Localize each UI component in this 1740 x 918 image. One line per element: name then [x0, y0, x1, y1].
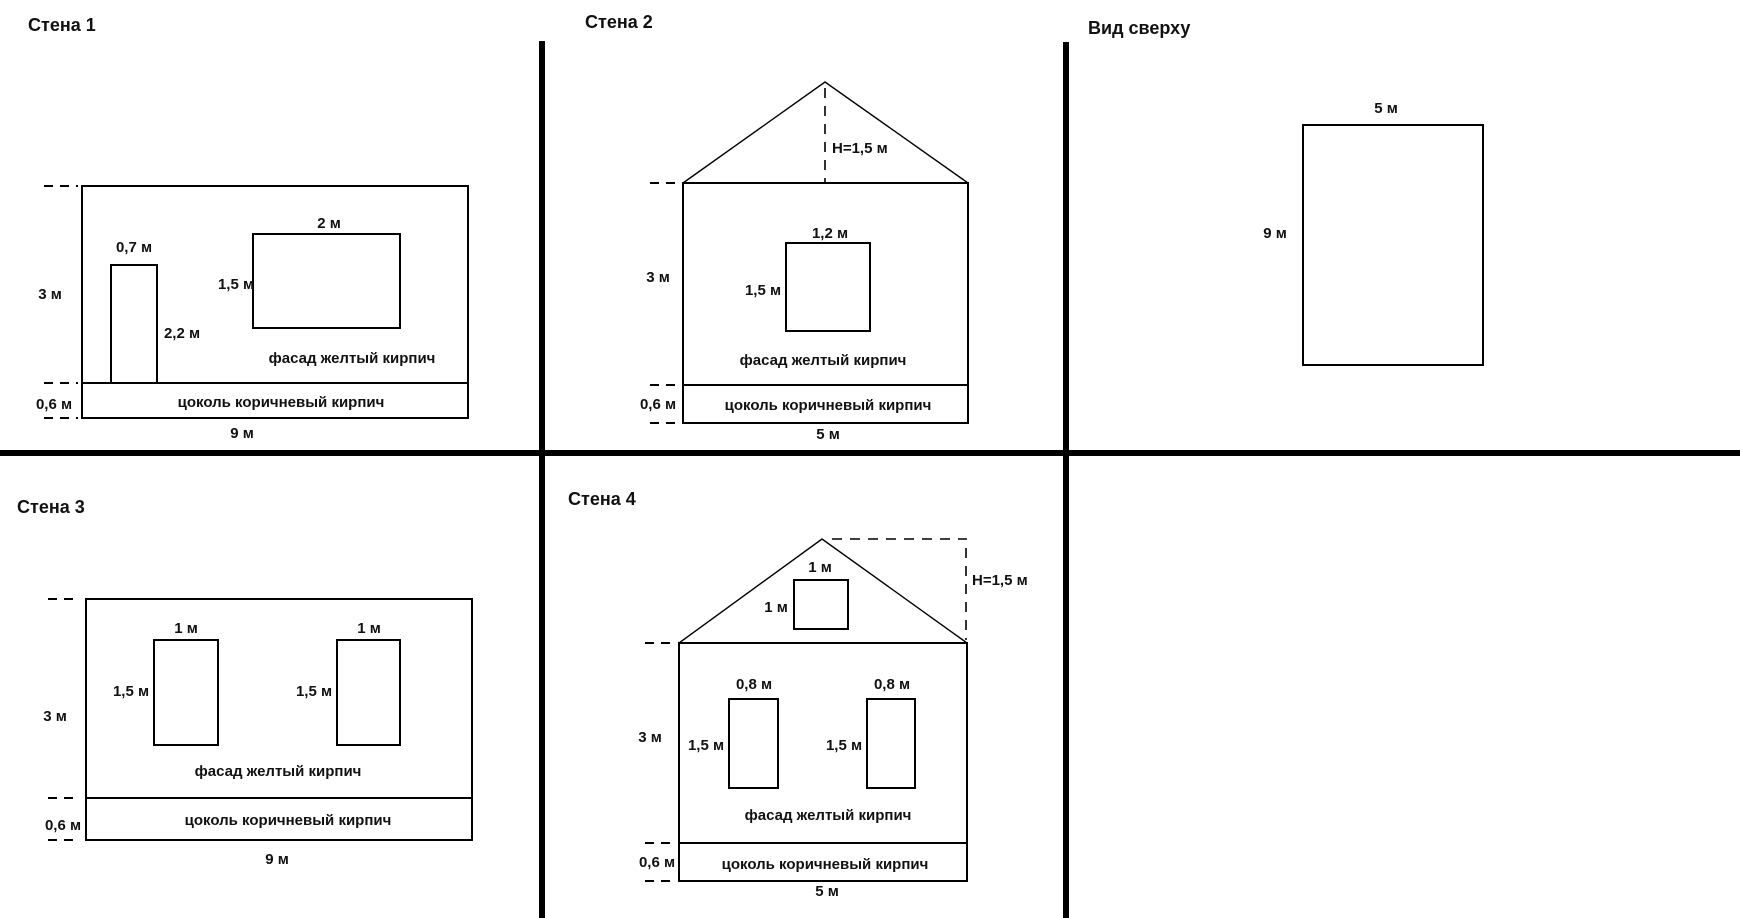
dim-window-height: 1,5 м [218, 276, 254, 293]
dim-plinth-height: 0,6 м [639, 854, 675, 871]
panel-title: Стена 3 [17, 497, 85, 517]
dim-window-width: 0,8 м [874, 676, 910, 693]
facade-material-label: фасад желтый кирпич [745, 807, 912, 824]
plinth-material-label: цоколь коричневый кирпич [725, 397, 932, 414]
elevation-drawing: Стена 1 3 м 0,7 м 2,2 м 2 м 1,5 м фасад … [0, 0, 1740, 918]
building-footprint [1303, 125, 1483, 365]
attic-window [794, 580, 848, 629]
dim-plinth-height: 0,6 м [640, 396, 676, 413]
dim-wall-height: 3 м [38, 286, 62, 303]
plinth-material-label: цоколь коричневый кирпич [185, 812, 392, 829]
dim-window-width: 1 м [357, 620, 381, 637]
drawing-sheet: Стена 1 3 м 0,7 м 2,2 м 2 м 1,5 м фасад … [0, 0, 1740, 918]
dim-wall-width: 9 м [265, 851, 289, 868]
dim-window-height: 1,5 м [745, 282, 781, 299]
dim-wall-height: 3 м [646, 269, 670, 286]
panel-title: Стена 1 [28, 15, 96, 35]
dim-door-height: 2,2 м [164, 325, 200, 342]
panel-title: Стена 4 [568, 489, 636, 509]
window-right [867, 699, 915, 788]
window [786, 243, 870, 331]
dim-window-height: 1,5 м [296, 683, 332, 700]
plinth-material-label: цоколь коричневый кирпич [722, 856, 929, 873]
dim-footprint-width: 5 м [1374, 100, 1398, 117]
plinth-material-label: цоколь коричневый кирпич [178, 394, 385, 411]
panel-wall3: Стена 3 1 м 1 м 1,5 м 1,5 м 3 м фасад же… [17, 497, 472, 868]
dim-window-height: 1,5 м [688, 737, 724, 754]
dim-roof-height: H=1,5 м [972, 572, 1028, 589]
facade-material-label: фасад желтый кирпич [740, 352, 907, 369]
panel-wall2: Стена 2 H=1,5 м 3 м 1,2 м 1,5 м фасад же… [585, 12, 968, 443]
dim-wall-height: 3 м [43, 708, 67, 725]
panel-wall4: Стена 4 1 м 1 м H=1,5 м 0,8 м 0,8 м 1,5 … [568, 489, 1028, 900]
facade-material-label: фасад желтый кирпич [269, 350, 436, 367]
dim-window-width: 1 м [174, 620, 198, 637]
window-left [729, 699, 778, 788]
dim-wall-width: 9 м [230, 425, 254, 442]
wall-outline [86, 599, 472, 840]
dim-window-width: 1,2 м [812, 225, 848, 242]
wall-outline [683, 183, 968, 423]
dim-door-width: 0,7 м [116, 239, 152, 256]
dim-roof-height: H=1,5 м [832, 140, 888, 157]
dim-plinth-height: 0,6 м [45, 817, 81, 834]
dim-window-height: 1,5 м [113, 683, 149, 700]
panel-wall1: Стена 1 3 м 0,7 м 2,2 м 2 м 1,5 м фасад … [28, 15, 468, 442]
panel-title: Стена 2 [585, 12, 653, 32]
dim-attic-window-width: 1 м [808, 559, 832, 576]
door [111, 265, 157, 383]
dim-wall-width: 5 м [816, 426, 840, 443]
window-right [337, 640, 400, 745]
roof [679, 539, 967, 643]
dim-window-width: 0,8 м [736, 676, 772, 693]
dim-attic-window-height: 1 м [764, 599, 788, 616]
panel-title: Вид сверху [1088, 18, 1190, 38]
panel-top-view: Вид сверху 5 м 9 м [1088, 18, 1483, 365]
facade-material-label: фасад желтый кирпич [195, 763, 362, 780]
dim-window-height: 1,5 м [826, 737, 862, 754]
window-left [154, 640, 218, 745]
window [253, 234, 400, 328]
dim-footprint-depth: 9 м [1263, 225, 1287, 242]
dim-window-width: 2 м [317, 215, 341, 232]
dim-plinth-height: 0,6 м [36, 396, 72, 413]
dim-wall-height: 3 м [638, 729, 662, 746]
wall-outline [679, 643, 967, 881]
dim-wall-width: 5 м [815, 883, 839, 900]
